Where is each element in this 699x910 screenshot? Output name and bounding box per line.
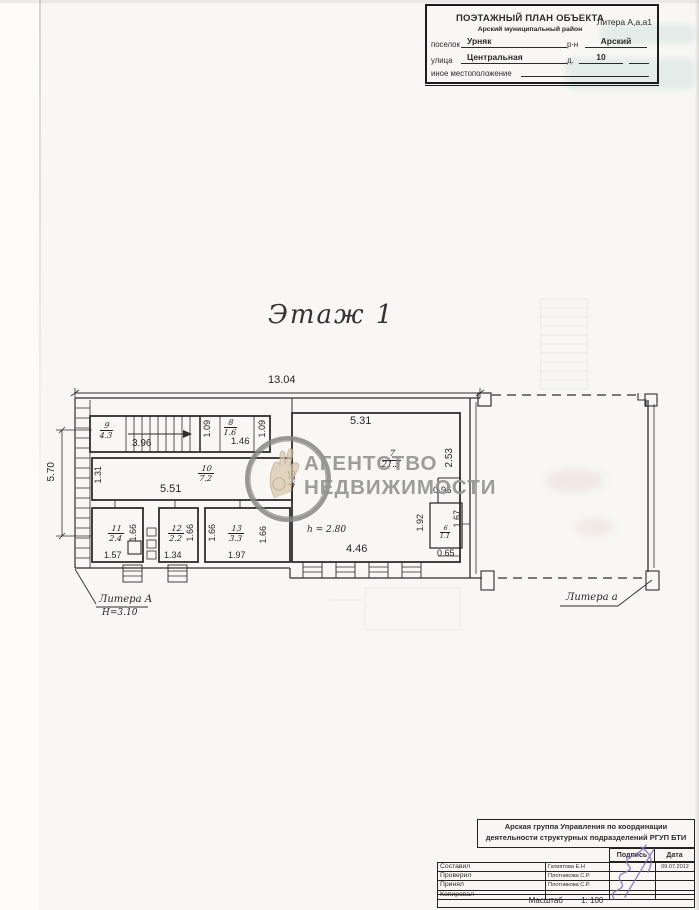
house-extra-underline [629,52,649,64]
footer-row-sostavil: Составил Гатиятова Е.Н 09.07.2012 [438,863,694,872]
scale-value: 1: 100 [581,896,603,905]
footer-scale-row: Масштаб 1: 100 [437,894,695,908]
dim-room12-bottom: 1.34 [164,550,182,560]
dim-room13-right: 1.66 [258,526,268,544]
dim-room8-width: 1.46 [231,436,250,447]
litera-small-label: Литера а [566,592,618,603]
dim-room7-top: 5.31 [350,415,371,427]
scan-stain-2 [575,518,615,536]
room-label-12: 12 2.2 [167,524,185,543]
header-box: ПОЭТАЖНЫЙ ПЛАН ОБЪЕКТА Арский муниципаль… [425,4,659,84]
floor-title: Этаж 1 [268,300,394,330]
litera-list: Литера А,а,а1 [597,17,652,27]
page-subtitle: Арский муниципальный район [441,26,619,33]
footer-signature-cell [610,881,656,889]
litera-a-height: Н=3.10 [102,608,137,618]
house-label: д. [567,56,574,65]
footer-org-line2: деятельности структурных подразделений Р… [478,833,694,844]
dim-room7-bottom: 4.46 [346,543,367,555]
street-label: улица [431,56,452,65]
page-title: ПОЭТАЖНЫЙ ПЛАН ОБЪЕКТА [441,13,619,24]
dim-room13-bottom: 1.97 [228,550,246,560]
dim-left-height: 5.70 [46,462,57,481]
litera-a-label: Литера А [99,594,152,605]
footer-name: Плотникова С.Р. [546,881,610,889]
settlement-value: Урняк [461,36,567,48]
footer-date: 09.07.2012 [656,863,694,871]
dim-total-width: 13.04 [268,374,296,386]
room-label-10: 10 7.2 [197,464,215,483]
footer-name: Плотникова С.Р. [546,872,610,880]
scale-label: Масштаб [529,896,563,905]
footer-date [656,881,694,889]
footer-name: Гатиятова Е.Н [546,863,610,871]
scan-fold-line [39,0,41,470]
settlement-label: поселок [431,40,460,49]
watermark-text: АГЕНТСТВО НЕДВИЖИМОСТИ [304,452,496,500]
scanned-floor-plan-page: ПОЭТАЖНЫЙ ПЛАН ОБЪЕКТА Арский муниципаль… [0,0,699,910]
dim-room11-side: 1.66 [128,524,138,542]
bleed-through-stair [541,299,587,389]
dim-corridor-width: 5.51 [160,483,181,495]
dim-room6-bottom: 0.65 [437,548,455,558]
dim-room12-side: 1.66 [185,524,195,542]
room-label-6: 6 1.1 [439,525,451,541]
dim-lobby-1: 1.09 [202,420,212,438]
dim-room13-left: 1.66 [207,524,217,542]
dim-room11-bottom: 1.57 [104,550,122,560]
room-label-13: 13 3.3 [227,524,245,543]
footer-role: Составил [438,863,546,871]
room-label-11: 11 2.4 [107,524,125,543]
footer-role: Проверил [438,872,546,880]
room-label-8: 8 1.6 [223,418,238,437]
ceiling-height-note: h = 2.80 [307,525,346,535]
watermark-line1: АГЕНТСТВО [304,452,496,476]
dim-room6-left: 1.92 [415,514,425,532]
footer-role: Принял [438,881,546,889]
other-location-underline [521,65,649,77]
footer-date [656,872,694,880]
footer-row-prinyal: Принял Плотникова С.Р. [438,881,694,890]
dim-lobby-2: 1.09 [257,420,267,438]
district-value: Арский [585,36,647,48]
scan-top-edge [0,0,699,3]
dim-room6-right: 1.67 [452,510,462,528]
footer-org-line1: Арская группа Управления по координации [478,822,694,833]
district-label: р-н [567,40,578,49]
footer-row-proveril: Проверил Плотникова С.Р. [438,872,694,881]
header-box-double-rule [425,85,659,86]
footer-org-box: Арская группа Управления по координации … [477,819,695,848]
room-label-9: 9 4.3 [99,421,114,440]
scan-right-edge [695,0,699,910]
house-value: 10 [579,52,623,64]
scan-left-strip [0,0,39,910]
footer-date-col-header: Дата [654,848,695,862]
dim-corridor-left: 1.31 [93,466,103,484]
dim-stair-width: 3.96 [132,438,151,449]
scan-stain-1 [545,468,605,493]
footer-signature-cell [610,872,656,880]
footer-signature-cell [610,863,656,871]
other-location-label: иное местоположение [431,69,512,78]
bleed-through-lines [330,588,460,630]
watermark-line2: НЕДВИЖИМОСТИ [304,476,496,500]
street-value: Центральная [461,52,567,64]
footer-sign-col-header: Подпись [609,848,655,862]
